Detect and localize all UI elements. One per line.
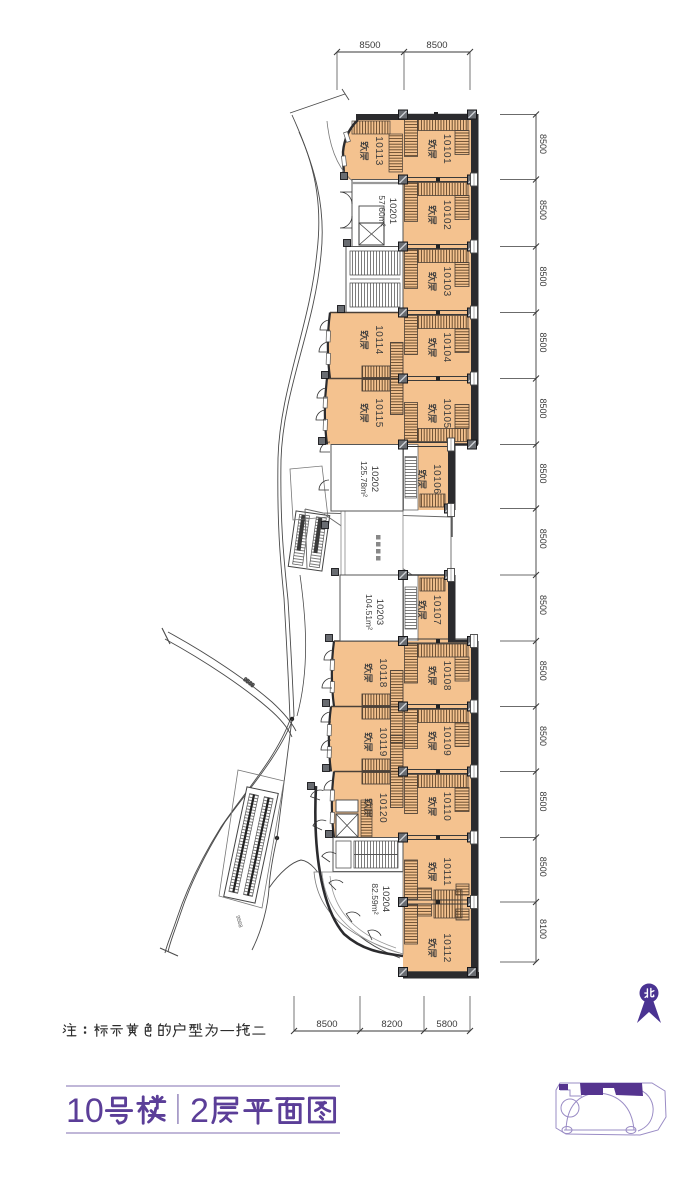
svg-text:8500: 8500 [538, 398, 548, 418]
svg-text:8500: 8500 [316, 1019, 337, 1030]
svg-text:8200: 8200 [381, 1019, 402, 1030]
svg-text:2: 2 [190, 1092, 209, 1130]
svg-text:10101: 10101 [441, 134, 452, 164]
svg-text:10113: 10113 [373, 136, 384, 166]
svg-text:104.51m²: 104.51m² [364, 594, 374, 630]
svg-text:8500: 8500 [538, 332, 548, 352]
svg-text:8500: 8500 [538, 529, 548, 549]
svg-text:8500: 8500 [538, 134, 548, 154]
svg-text:8500: 8500 [538, 266, 548, 286]
svg-text:10104: 10104 [441, 332, 452, 362]
svg-text:10105: 10105 [441, 398, 452, 428]
svg-text:10103: 10103 [441, 266, 452, 296]
svg-text:10204: 10204 [380, 886, 391, 912]
svg-text:8500: 8500 [538, 200, 548, 220]
svg-text:10: 10 [66, 1092, 104, 1130]
svg-text:10202: 10202 [369, 466, 380, 492]
svg-text:125.78m²: 125.78m² [359, 461, 369, 497]
svg-text:10111: 10111 [441, 857, 452, 886]
svg-text:10118: 10118 [377, 658, 388, 688]
svg-text:8500: 8500 [538, 791, 548, 811]
svg-text:5800: 5800 [436, 1019, 457, 1030]
svg-text:8500: 8500 [538, 726, 548, 746]
svg-text:57.60m²: 57.60m² [377, 195, 387, 226]
svg-text:10112: 10112 [441, 933, 452, 963]
svg-text:10107: 10107 [431, 595, 442, 625]
svg-text:10102: 10102 [441, 200, 452, 230]
svg-text:8500: 8500 [538, 857, 548, 877]
svg-text:10115: 10115 [373, 398, 384, 428]
svg-text:10120: 10120 [377, 793, 388, 823]
svg-text:10203: 10203 [374, 599, 385, 625]
svg-text:10201: 10201 [387, 198, 398, 224]
svg-text:8500: 8500 [538, 463, 548, 483]
svg-text:10109: 10109 [441, 726, 452, 756]
svg-text:10114: 10114 [373, 325, 384, 355]
svg-text:8500: 8500 [426, 40, 447, 51]
svg-text:10108: 10108 [441, 661, 452, 691]
svg-text:82.59m²: 82.59m² [370, 883, 380, 914]
svg-text:8500: 8500 [538, 661, 548, 681]
svg-text:10110: 10110 [441, 792, 452, 822]
svg-text:10106: 10106 [431, 464, 442, 494]
svg-text:8100: 8100 [538, 919, 548, 939]
svg-text:8500: 8500 [359, 40, 380, 51]
svg-text:8500: 8500 [538, 595, 548, 615]
svg-text:10119: 10119 [377, 727, 388, 757]
